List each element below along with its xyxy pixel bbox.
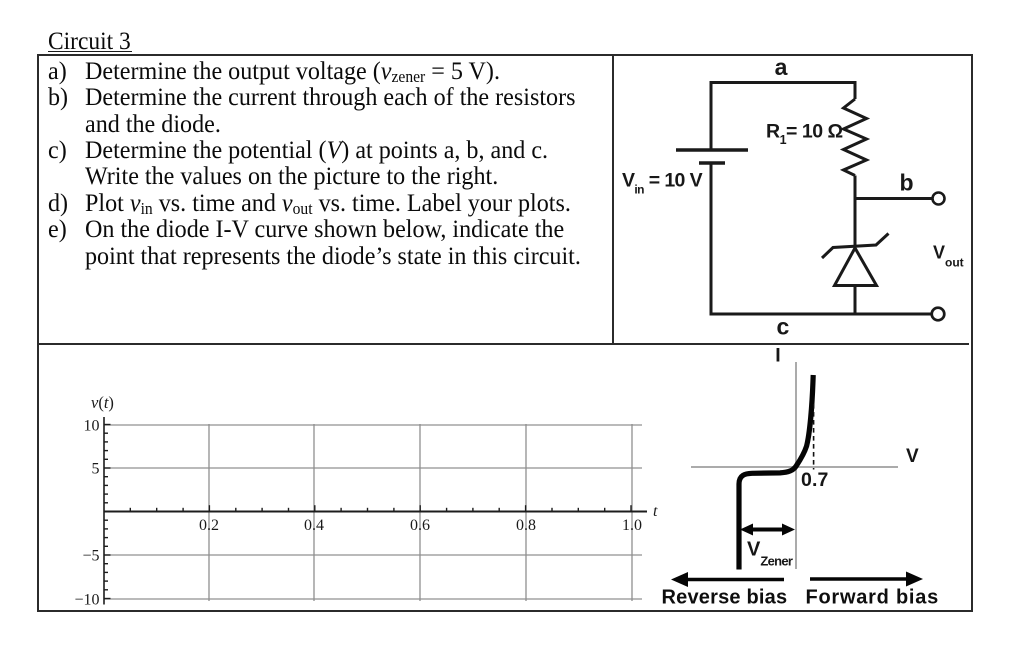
svg-text:0.7: 0.7 (801, 469, 828, 491)
svg-text:V: V (906, 446, 919, 467)
svg-text:VZener: VZener (747, 539, 793, 569)
svg-text:Reverse bias: Reverse bias (662, 587, 788, 609)
svg-text:I: I (775, 345, 780, 367)
svg-text:Forward bias: Forward bias (806, 587, 939, 609)
